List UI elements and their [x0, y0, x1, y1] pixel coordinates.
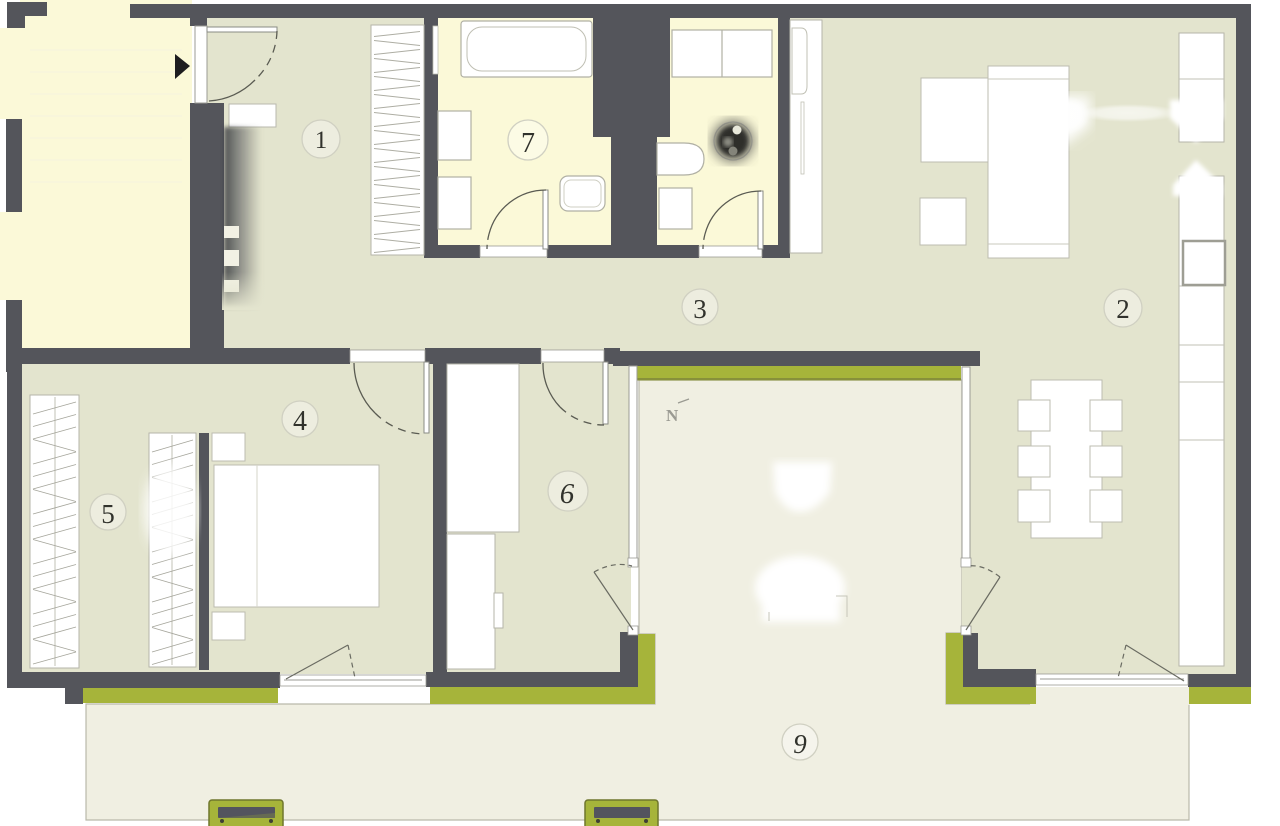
svg-text:7: 7	[521, 128, 535, 159]
svg-text:5: 5	[101, 499, 115, 529]
svg-text:4: 4	[293, 406, 307, 437]
svg-text:3: 3	[693, 294, 707, 324]
svg-text:N: N	[666, 406, 679, 425]
svg-text:9: 9	[793, 729, 807, 759]
svg-text:2: 2	[1116, 294, 1130, 324]
svg-text:1: 1	[315, 127, 328, 154]
svg-text:6: 6	[560, 478, 575, 510]
